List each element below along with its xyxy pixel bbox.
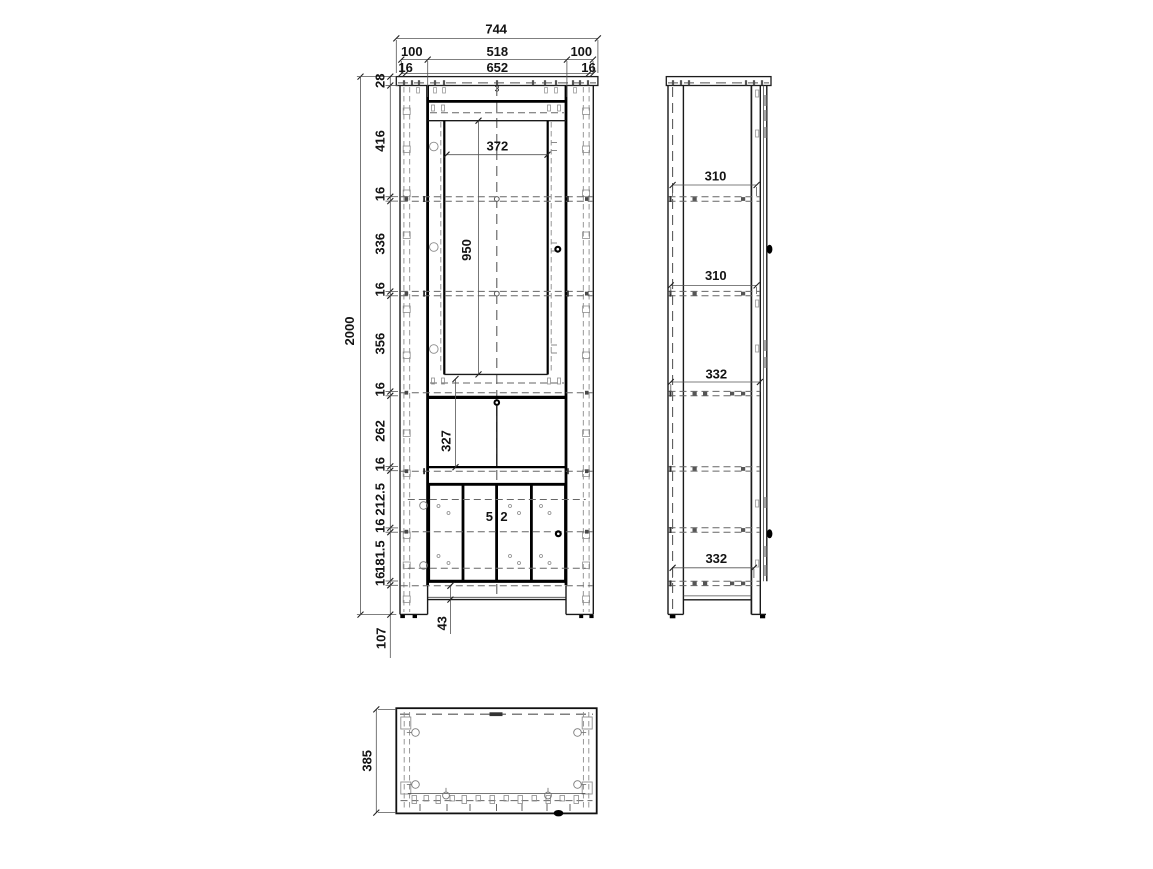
svg-text:327: 327 — [438, 430, 453, 452]
svg-text:16: 16 — [581, 60, 595, 75]
svg-text:16: 16 — [372, 572, 387, 586]
svg-text:950: 950 — [459, 239, 474, 261]
svg-text:16: 16 — [372, 519, 387, 533]
svg-text:518: 518 — [486, 44, 508, 59]
svg-text:16: 16 — [372, 187, 387, 201]
svg-text:16: 16 — [372, 282, 387, 296]
svg-text:2: 2 — [500, 509, 507, 524]
svg-text:336: 336 — [372, 233, 387, 255]
svg-text:332: 332 — [705, 551, 727, 566]
svg-text:181.5: 181.5 — [372, 540, 387, 573]
svg-text:416: 416 — [372, 130, 387, 152]
svg-text:2000: 2000 — [342, 317, 357, 346]
svg-text:310: 310 — [705, 169, 727, 184]
svg-text:332: 332 — [705, 366, 727, 381]
svg-text:5: 5 — [486, 509, 493, 524]
svg-text:16: 16 — [398, 60, 412, 75]
svg-text:28: 28 — [372, 74, 387, 88]
svg-text:262: 262 — [372, 420, 387, 442]
svg-text:100: 100 — [570, 44, 592, 59]
svg-text:372: 372 — [487, 139, 509, 154]
svg-text:16: 16 — [372, 457, 387, 471]
svg-text:744: 744 — [485, 22, 507, 37]
svg-text:356: 356 — [372, 333, 387, 355]
svg-text:16: 16 — [372, 382, 387, 396]
svg-text:100: 100 — [401, 44, 423, 59]
svg-text:652: 652 — [486, 60, 508, 75]
svg-text:43: 43 — [434, 616, 449, 630]
svg-text:310: 310 — [705, 268, 727, 283]
svg-text:107: 107 — [373, 627, 388, 649]
svg-text:385: 385 — [359, 750, 374, 772]
svg-text:212.5: 212.5 — [372, 483, 387, 516]
